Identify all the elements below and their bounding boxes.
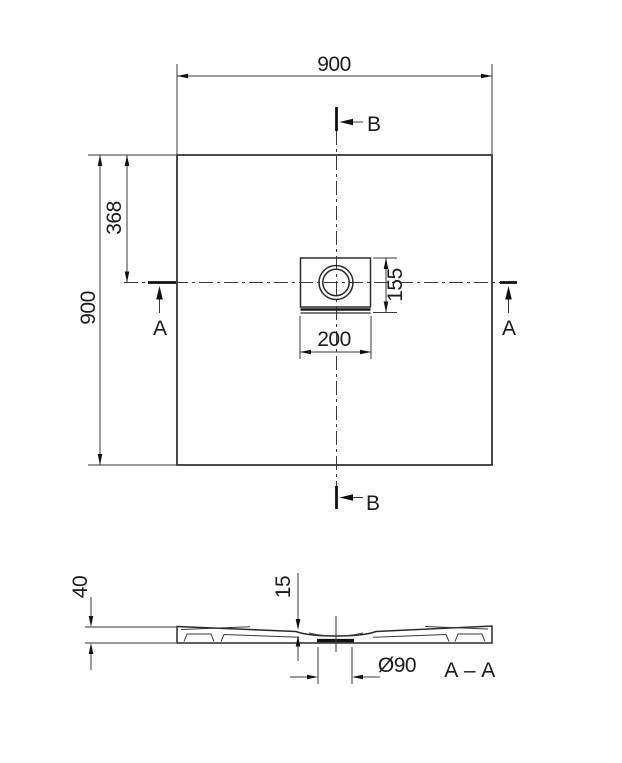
view-direction-arrowhead bbox=[340, 494, 354, 501]
dim-label-40: 40 bbox=[69, 576, 92, 598]
arrowhead-down bbox=[98, 454, 103, 465]
dim-tray-height: 40 bbox=[69, 576, 176, 670]
arrowhead-down bbox=[89, 616, 94, 627]
dim-drain-center-from-top: 368 bbox=[103, 155, 129, 283]
arrowhead-down bbox=[384, 302, 389, 313]
section-label-b-bottom: B bbox=[366, 492, 380, 515]
arrowhead-down bbox=[296, 619, 301, 630]
section-marker-a-left: A bbox=[148, 283, 176, 341]
underside-channel-right bbox=[373, 635, 449, 642]
section-marker-b-top: B bbox=[337, 107, 382, 136]
arrowhead-right bbox=[307, 675, 318, 680]
arrowhead-left bbox=[352, 675, 363, 680]
section-marker-b-bottom: B bbox=[337, 486, 381, 515]
underside-channel-left bbox=[221, 635, 299, 642]
dim-label-900-top: 900 bbox=[317, 53, 351, 76]
arrowhead-down bbox=[125, 272, 130, 283]
dim-label-200: 200 bbox=[317, 328, 351, 351]
section-label-a-left: A bbox=[153, 317, 167, 340]
technical-drawing-sheet: 900 900 368 155 bbox=[0, 0, 622, 763]
arrowhead-left bbox=[177, 74, 188, 79]
arrowhead-up bbox=[89, 643, 94, 654]
section-marker-a-right: A bbox=[500, 283, 517, 341]
arrowhead-up bbox=[98, 155, 103, 166]
dim-drain-area-thickness: 15 bbox=[272, 573, 300, 661]
underside-foot-right bbox=[455, 634, 485, 642]
arrowhead-up bbox=[384, 258, 389, 269]
view-direction-arrowhead bbox=[505, 286, 512, 300]
drain-unit-plan bbox=[301, 258, 371, 313]
view-direction-arrowhead bbox=[156, 286, 163, 300]
view-direction-arrowhead bbox=[340, 119, 354, 126]
section-label-b-top: B bbox=[367, 113, 381, 136]
section-view-title: A – A bbox=[444, 659, 496, 682]
arrowhead-right bbox=[481, 74, 492, 79]
shower-tray-drawing: 900 900 368 155 bbox=[0, 0, 622, 763]
dim-label-15: 15 bbox=[272, 576, 295, 598]
section-label-a-right: A bbox=[502, 317, 516, 340]
arrowhead-up bbox=[125, 155, 130, 166]
dim-label-diameter-90: Ø90 bbox=[378, 654, 416, 677]
dim-label-900-left: 900 bbox=[77, 291, 100, 325]
dim-label-368: 368 bbox=[103, 201, 126, 235]
dim-label-155: 155 bbox=[384, 268, 407, 302]
tray-profile bbox=[177, 616, 492, 652]
arrowhead-left bbox=[300, 350, 311, 355]
dim-drain-diameter: Ø90 bbox=[290, 647, 416, 684]
section-view-a-a: 40 15 Ø90 A – A bbox=[69, 573, 496, 684]
dim-drain-plate-height: 155 bbox=[373, 258, 407, 313]
dim-drain-plate-width: 200 bbox=[300, 316, 371, 359]
dim-overall-width: 900 bbox=[177, 53, 492, 155]
plan-view: 900 900 368 155 bbox=[77, 53, 517, 515]
arrowhead-right bbox=[360, 350, 371, 355]
underside-foot-left bbox=[184, 634, 214, 642]
